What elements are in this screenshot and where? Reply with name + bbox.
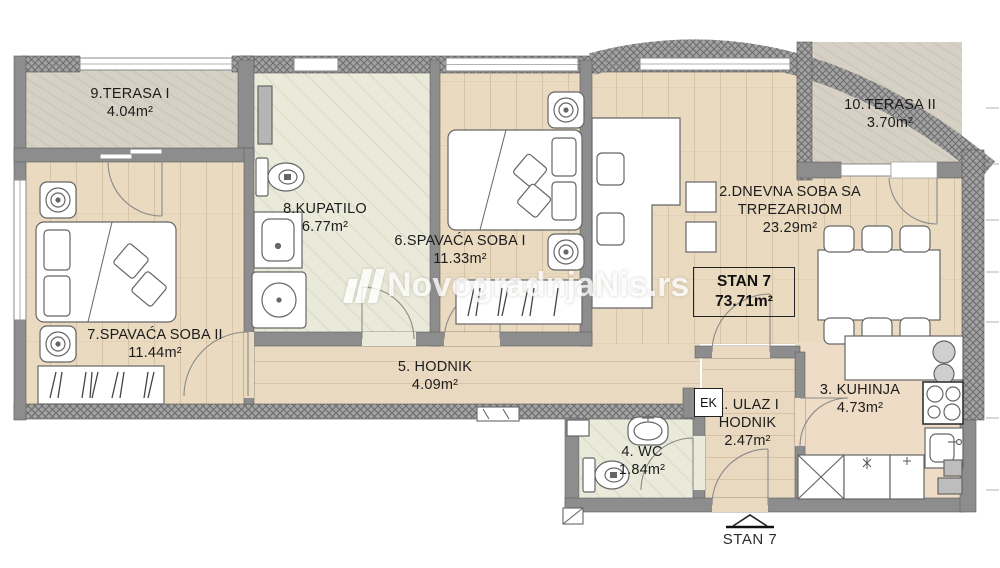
- toilet-icon: [256, 158, 304, 196]
- terrace2-door-swing: [889, 178, 937, 224]
- room-area: 2.47m²: [700, 432, 795, 450]
- radiator-hall: [477, 407, 519, 421]
- sink-bowl: [934, 364, 954, 384]
- room-area: 4.04m²: [55, 103, 205, 121]
- wardrobe: [38, 366, 164, 404]
- room-area: 3.70m²: [815, 114, 965, 132]
- room-name: 4. WC: [592, 443, 692, 461]
- dining-chair: [900, 226, 930, 252]
- room-label-spavaca2: 7.SPAVAĆA SOBA II 11.44m²: [70, 326, 240, 362]
- room-name: 3. KUHINJA: [790, 381, 930, 399]
- pillow: [44, 276, 70, 316]
- room-area: 23.29m²: [705, 219, 875, 237]
- room-area: 6.77m²: [250, 218, 400, 236]
- room-name: 2.DNEVNA SOBA SA: [705, 183, 875, 201]
- room-name: 5. HODNIK: [360, 358, 510, 376]
- bathroom-door-swing: [362, 287, 414, 339]
- room-area: 4.73m²: [790, 399, 930, 417]
- radiator: [258, 86, 272, 144]
- lamp-icon: [554, 240, 578, 264]
- room-name: 8.KUPATILO: [250, 200, 400, 218]
- room-name: 6.SPAVAĆA SOBA I: [380, 232, 540, 250]
- sofa-cushion: [597, 213, 624, 245]
- room-area: 11.44m²: [70, 344, 240, 362]
- apartment-area: 73.71m²: [694, 292, 794, 312]
- terrace1-door-leaf: [100, 154, 132, 159]
- footer-apartment-label: STAN 7: [716, 531, 784, 548]
- room-label-kuhinja: 3. KUHINJA 4.73m²: [790, 381, 930, 417]
- apartment-label: STAN 7: [694, 272, 794, 292]
- room-area: 11.33m²: [380, 250, 540, 268]
- pillow: [552, 182, 576, 220]
- room-label-dnevna: 2.DNEVNA SOBA SA TRPEZARIJOM 23.29m²: [705, 183, 875, 237]
- wardrobe: [456, 280, 582, 324]
- bathroom-window: [294, 58, 338, 71]
- room-name: 9.TERASA I: [55, 85, 205, 103]
- room-label-kupatilo: 8.KUPATILO 6.77m²: [250, 200, 400, 236]
- bedroom1-furniture: [448, 92, 584, 324]
- room-area: 1.84m²: [592, 461, 692, 479]
- room-area: 4.09m²: [360, 376, 510, 394]
- terrace1-door-leaf: [130, 149, 162, 154]
- lamp-icon: [46, 332, 70, 356]
- shower-icon: [252, 272, 306, 328]
- room-label-hodnik: 5. HODNIK 4.09m²: [360, 358, 510, 394]
- wc-sink-icon: [628, 414, 668, 445]
- lamp-icon: [554, 98, 578, 122]
- wc-cabinet: [567, 420, 589, 436]
- apartment-summary-box: STAN 7 73.71m²: [693, 267, 795, 317]
- room-label-wc: 4. WC 1.84m²: [592, 443, 692, 479]
- kitchen-furniture: [798, 336, 963, 499]
- terrace2-railing: [841, 164, 891, 176]
- floor-plan: 9.TERASA I 4.04m² 8.KUPATILO 6.77m² 6.SP…: [0, 0, 1000, 568]
- kitchen-drawer: [944, 460, 962, 476]
- room-name: 10.TERASA II: [815, 96, 965, 114]
- entry-marker-icon: [726, 515, 774, 527]
- dining-table: [818, 250, 940, 320]
- room-name: 7.SPAVAĆA SOBA II: [70, 326, 240, 344]
- sofa-cushion: [597, 153, 624, 185]
- room-label-spavaca1: 6.SPAVAĆA SOBA I 11.33m²: [380, 232, 540, 268]
- terrace1-door-swing: [108, 162, 162, 216]
- kitchen-drawer: [938, 478, 962, 494]
- fridge-icon: [798, 455, 844, 499]
- pillow: [552, 138, 576, 176]
- entrance-door-swing: [712, 449, 768, 505]
- sink-bowl: [933, 341, 955, 363]
- room-label-terasa2: 10.TERASA II 3.70m²: [815, 96, 965, 132]
- room-label-terasa1: 9.TERASA I 4.04m²: [55, 85, 205, 121]
- ek-closet-box: EK: [694, 388, 723, 417]
- entry-step: [563, 508, 583, 524]
- pillow: [44, 230, 70, 270]
- ek-label: EK: [700, 396, 717, 410]
- lamp-icon: [46, 188, 70, 212]
- room-name: TRPEZARIJOM: [705, 201, 875, 219]
